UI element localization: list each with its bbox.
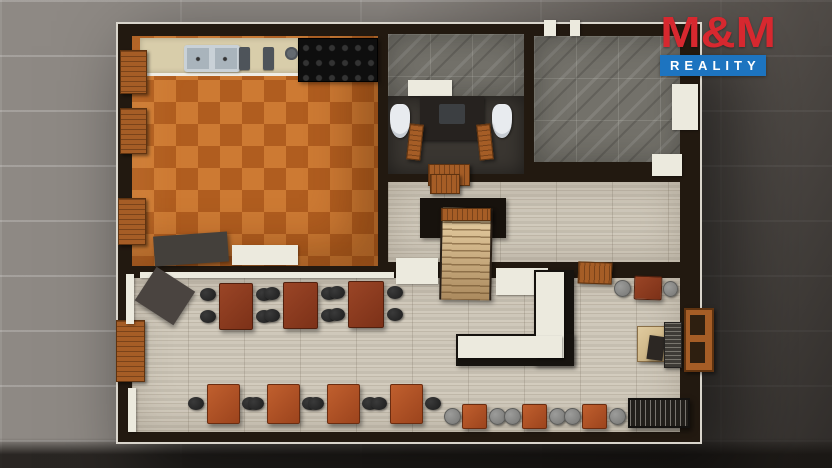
hall-bench <box>430 174 460 194</box>
logo-tagline: REALITY <box>660 55 766 76</box>
staircase <box>439 208 493 301</box>
window-shutter <box>120 108 147 154</box>
window-shutter <box>116 320 145 382</box>
hall-chair <box>578 261 613 284</box>
floorplan-scene: M&M REALITY <box>0 0 832 468</box>
window-shutter <box>120 50 147 94</box>
armchair <box>609 408 626 425</box>
bench <box>628 398 690 428</box>
armchair <box>504 408 521 425</box>
double-sink <box>184 45 240 72</box>
faucet <box>263 47 274 70</box>
chair <box>387 308 403 321</box>
armchair <box>444 408 461 425</box>
kitchen-cabinet-dark <box>153 231 229 266</box>
chair <box>371 397 387 410</box>
door-frame <box>652 154 682 176</box>
stove-range <box>298 38 378 82</box>
cafe-table <box>462 404 487 429</box>
wall-ledge <box>140 272 394 278</box>
stair-sidewall <box>396 258 438 284</box>
stair-landing <box>441 208 491 221</box>
chest-freezer <box>232 245 298 265</box>
chair <box>264 309 280 322</box>
dining-table <box>348 281 384 328</box>
chair <box>329 308 345 321</box>
storage-room-floor <box>534 36 680 162</box>
armchair <box>614 280 631 297</box>
bistro-table <box>390 384 423 424</box>
desk-chair <box>646 335 665 361</box>
chair <box>264 287 280 300</box>
radiator-bench <box>664 322 682 368</box>
wc-window-frame <box>408 80 452 96</box>
window-shutter <box>118 198 146 245</box>
window-shutter <box>684 308 714 372</box>
faucet <box>239 47 250 70</box>
bistro-table <box>327 384 360 424</box>
chair <box>308 397 324 410</box>
bar-counter-top <box>458 336 562 358</box>
chair <box>200 288 216 301</box>
window-frame <box>672 84 698 130</box>
hot-plate <box>285 47 298 60</box>
bistro-table <box>267 384 300 424</box>
armchair <box>663 281 678 297</box>
chair <box>329 286 345 299</box>
chair <box>425 397 441 410</box>
bistro-table <box>207 384 240 424</box>
cafe-table <box>582 404 607 429</box>
chair <box>387 286 403 299</box>
chair <box>188 397 204 410</box>
dining-table <box>219 283 253 330</box>
logo-text: M&M <box>660 12 776 54</box>
wall-post <box>570 20 580 36</box>
wall-window <box>128 388 136 432</box>
dining-table <box>283 282 318 329</box>
chair <box>248 397 264 410</box>
mm-reality-logo: M&M REALITY <box>660 12 766 76</box>
wall-window <box>126 274 134 324</box>
cafe-table <box>522 404 547 429</box>
chair <box>200 310 216 323</box>
armchair <box>564 408 581 425</box>
hall-table <box>634 276 663 301</box>
washbasin-vanity <box>420 96 484 140</box>
wall-post <box>544 20 556 36</box>
